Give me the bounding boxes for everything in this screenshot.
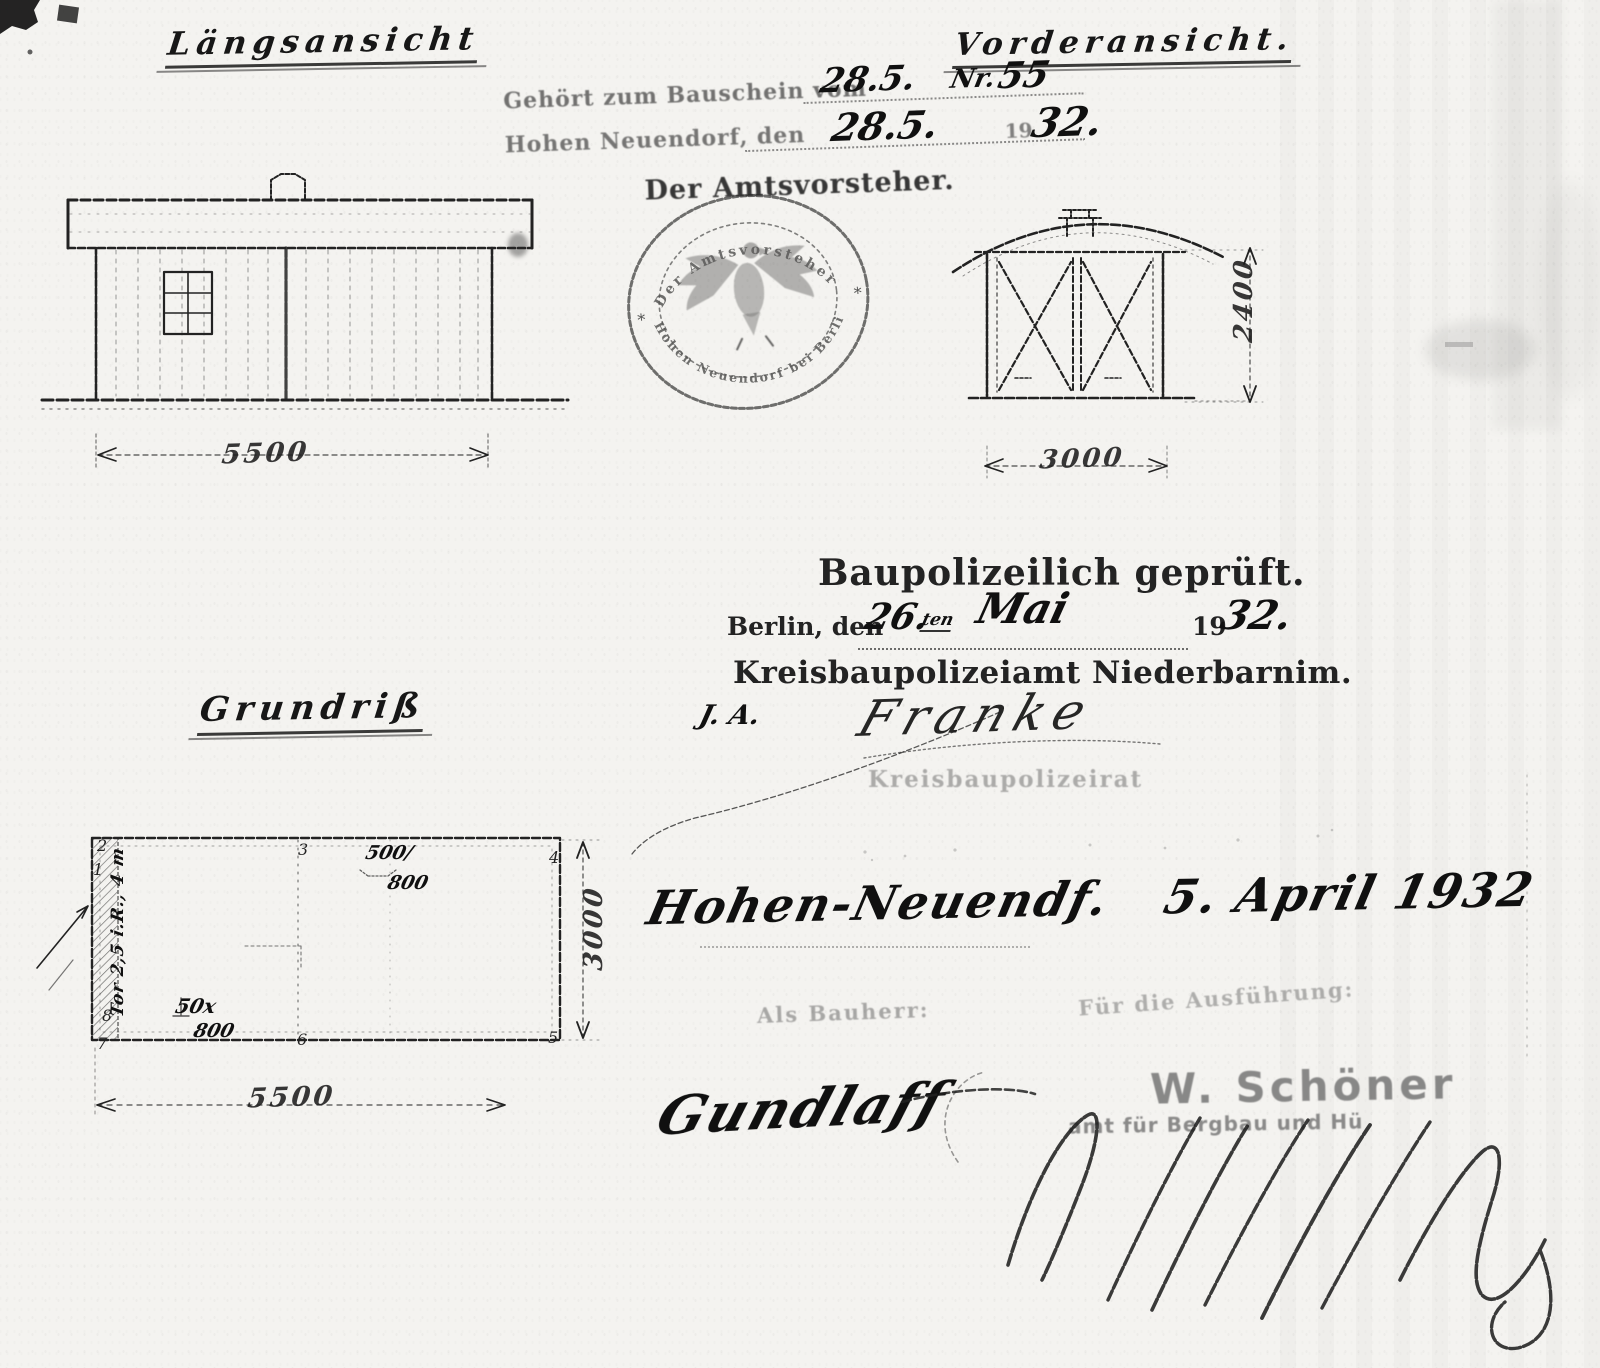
approval-faint-stamp: Kreisbaupolizeirat — [868, 766, 1143, 793]
bottom-left-label: Als Bauherr: — [757, 997, 930, 1028]
plan-corner-2: 2 — [97, 836, 107, 855]
title-laengsansicht-text: Längsansicht — [165, 19, 482, 68]
front-height-dim-label: 2400 — [1229, 256, 1259, 345]
stamp-star-left: * — [637, 310, 647, 330]
plan-corner-8: 8 — [102, 1006, 112, 1025]
left-signature: Gundlaff — [650, 1069, 955, 1148]
permit-line2-date: 28.5. — [828, 101, 943, 150]
permit-line1-date: 28.5. — [817, 58, 920, 102]
permit-line1-nr-value: 55 — [994, 53, 1053, 97]
approval-year-hand: 32. — [1216, 592, 1297, 639]
scanned-document-page: Längsansicht Vorderansicht. Grundriß Geh… — [0, 0, 1600, 1368]
front-width-dim-label: 3000 — [1038, 443, 1126, 476]
plan-corner-6: 6 — [297, 1030, 307, 1049]
plan-corner-5: 5 — [548, 1028, 558, 1047]
approval-ia: J. A. — [696, 700, 764, 731]
permit-note-stamp: Gehört zum Bauschein vom 28.5. Nr. 55 Ho… — [503, 68, 1107, 219]
approval-signature: Franke — [851, 682, 1101, 748]
bottom-right-label: Für die Ausführung: — [1077, 976, 1355, 1020]
plan-gate-note: Tor 2,5 i.R., 4 m — [108, 846, 128, 1019]
permit-line3-signer: Der Amtsvorsteher. — [644, 165, 955, 207]
handwritten-place: Hohen-Neuendf. — [642, 871, 1115, 936]
permit-line2-printed: Hohen Neuendorf, den — [504, 122, 805, 158]
approval-day-suffix: ten — [919, 610, 956, 632]
approval-dotted-line — [858, 648, 1188, 650]
plan-post-dim-top2: 800 — [385, 872, 430, 894]
plan-width-dim-label: 5500 — [246, 1080, 337, 1114]
schoener-stamp-name: W. Schöner — [1150, 1059, 1457, 1113]
plan-height-dim-label: 3000 — [579, 884, 609, 973]
permit-line2-year-hand: 32. — [1027, 97, 1107, 147]
title-grundriss: Grundriß — [197, 686, 428, 736]
handwritten-date: 5. April 1932 — [1158, 863, 1539, 926]
scan-light-band — [1492, 0, 1562, 430]
title-laengsansicht: Längsansicht — [165, 19, 482, 68]
handwritten-date-line: Hohen-Neuendf. 5. April 1932 — [648, 863, 1534, 937]
plan-corner-7: 7 — [97, 1034, 107, 1053]
title-grundriss-text: Grundriß — [197, 686, 428, 736]
handwritten-date-dots — [700, 946, 1030, 948]
scan-blotch — [1425, 320, 1535, 380]
plan-post-dim-bottom2: 800 — [191, 1020, 236, 1042]
plan-corner-1: 1 — [93, 860, 103, 879]
stamp-star-right: * — [853, 283, 863, 303]
plan-post-dim-top1: 500/ — [363, 842, 415, 864]
plan-corner-4: 4 — [549, 848, 559, 867]
plan-corner-3: 3 — [298, 840, 308, 859]
schoener-stamp-line2: amt für Bergbau und Hü — [1068, 1109, 1364, 1138]
laengsansicht-drawing — [40, 172, 570, 472]
permit-line1-printed: Gehört zum Bauschein vom — [503, 76, 867, 115]
permit-line1-nr: Nr. — [948, 63, 999, 95]
laengs-width-dim-label: 5500 — [220, 436, 311, 470]
scan-blotch — [1540, 180, 1600, 400]
plan-post-dim-bottom1: 50x — [173, 994, 219, 1018]
approval-month: Mai — [972, 584, 1074, 633]
